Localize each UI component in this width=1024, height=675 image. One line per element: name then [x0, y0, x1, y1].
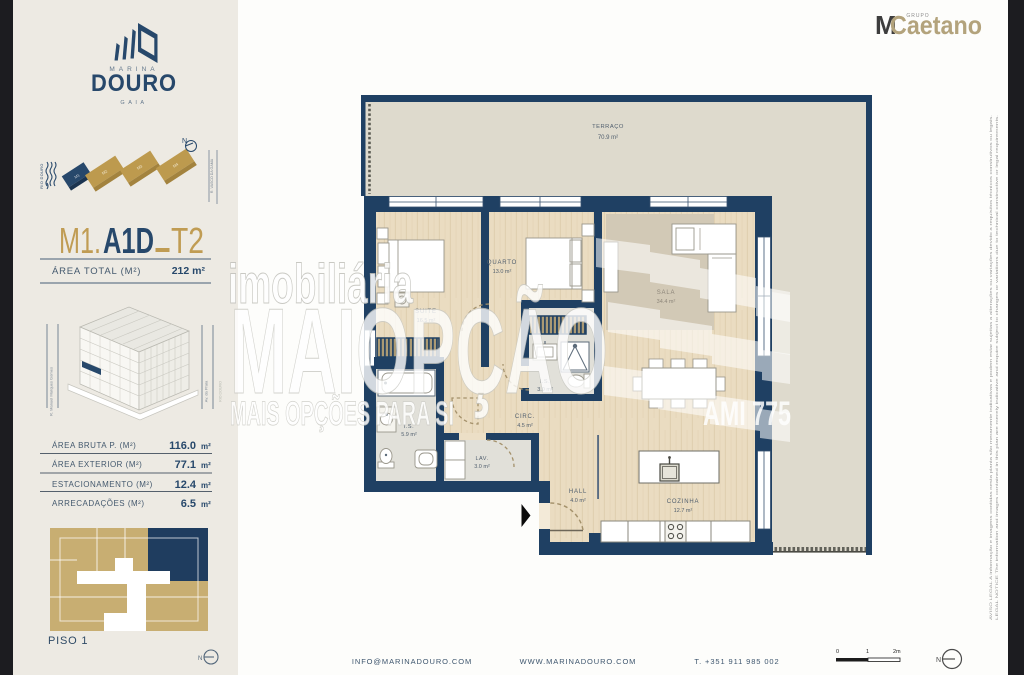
svg-text:m²: m²: [201, 500, 211, 509]
svg-text:13.0 m²: 13.0 m²: [493, 269, 512, 275]
svg-text:HALL: HALL: [569, 489, 587, 495]
svg-text:ESTACIONAMENTO (M²): ESTACIONAMENTO (M²): [52, 480, 153, 489]
svg-text:1: 1: [866, 649, 869, 655]
svg-text:INFO@MARINADOURO.COM: INFO@MARINADOURO.COM: [352, 657, 472, 666]
svg-text:T2: T2: [171, 220, 204, 261]
svg-text:6.5: 6.5: [181, 498, 196, 510]
svg-text:WWW.MARINADOURO.COM: WWW.MARINADOURO.COM: [520, 657, 637, 666]
svg-text:M1.: M1.: [59, 220, 101, 261]
svg-text:m²: m²: [201, 481, 211, 490]
svg-text:TERRAÇO: TERRAÇO: [592, 124, 624, 130]
svg-text:212 m²: 212 m²: [172, 265, 206, 277]
svg-text:Caetano: Caetano: [890, 10, 982, 40]
svg-text:COZINHA: COZINHA: [667, 499, 700, 505]
svg-text:4.5 m²: 4.5 m²: [517, 423, 533, 429]
svg-text:GAIA: GAIA: [120, 100, 147, 106]
svg-text:2m: 2m: [893, 649, 901, 655]
svg-text:DOURO: DOURO: [91, 70, 177, 97]
svg-text:ÁREA TOTAL (M²): ÁREA TOTAL (M²): [52, 266, 141, 277]
svg-text:AVISO LEGAL A informação e ima: AVISO LEGAL A informação e imagens conti…: [989, 115, 993, 620]
svg-text:LAV.: LAV.: [475, 456, 488, 462]
svg-text:ÁREA BRUTA P. (M²): ÁREA BRUTA P. (M²): [52, 441, 136, 450]
svg-text:m²: m²: [201, 461, 211, 470]
svg-text:MAIS OPÇÕES PARA SI: MAIS OPÇÕES PARA SI: [230, 395, 454, 433]
svg-text:R. VASCO DA GAMA: R. VASCO DA GAMA: [210, 158, 214, 193]
svg-text:ÁREA EXTERIOR (M²): ÁREA EXTERIOR (M²): [52, 460, 142, 469]
svg-text:SALA: SALA: [657, 290, 676, 296]
svg-text:T. +351 911 985 002: T. +351 911 985 002: [694, 657, 779, 666]
svg-text:116.0: 116.0: [169, 440, 196, 452]
svg-text:A1D: A1D: [103, 220, 154, 261]
svg-text:4.0 m²: 4.0 m²: [570, 498, 586, 504]
svg-text:0: 0: [836, 649, 839, 655]
svg-text:AMI 775: AMI 775: [703, 395, 791, 433]
svg-text:N: N: [936, 657, 941, 664]
svg-text:PISO 1: PISO 1: [48, 635, 88, 647]
svg-text:70.9 m²: 70.9 m²: [598, 135, 618, 141]
svg-text:RIO DOURO: RIO DOURO: [219, 381, 223, 402]
svg-text:3.0 m²: 3.0 m²: [474, 464, 490, 470]
svg-text:34.4 m²: 34.4 m²: [657, 299, 676, 305]
svg-text:RIO DOURO: RIO DOURO: [40, 163, 44, 189]
svg-text:R. Manuel Marques Gomes: R. Manuel Marques Gomes: [49, 367, 54, 416]
svg-text:ARRECADAÇÕES (M²): ARRECADAÇÕES (M²): [52, 499, 145, 508]
svg-text:m²: m²: [201, 442, 211, 451]
svg-text:QUARTO: QUARTO: [487, 260, 517, 266]
svg-text:N: N: [198, 656, 202, 662]
svg-text:77.1: 77.1: [175, 459, 196, 471]
svg-text:12.7 m²: 12.7 m²: [674, 508, 693, 514]
svg-text:LEGAL NOTICE The information a: LEGAL NOTICE The information and images …: [995, 115, 999, 620]
svg-text:Av. da Praia: Av. da Praia: [204, 380, 209, 402]
svg-text:12.4: 12.4: [175, 479, 197, 491]
